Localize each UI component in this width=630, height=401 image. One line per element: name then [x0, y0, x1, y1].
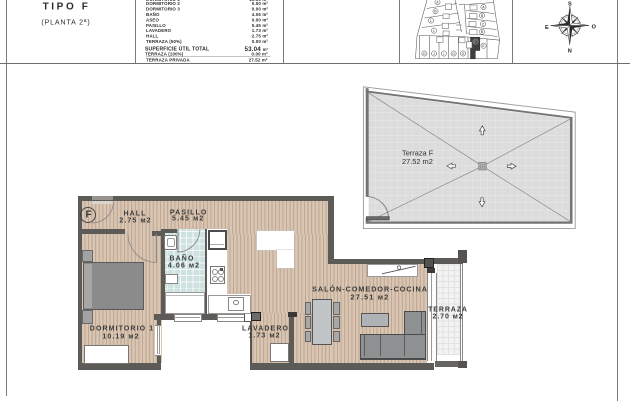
- svg-text:Terraza F: Terraza F: [402, 148, 434, 157]
- svg-text:27.52 m2: 27.52 m2: [402, 157, 433, 166]
